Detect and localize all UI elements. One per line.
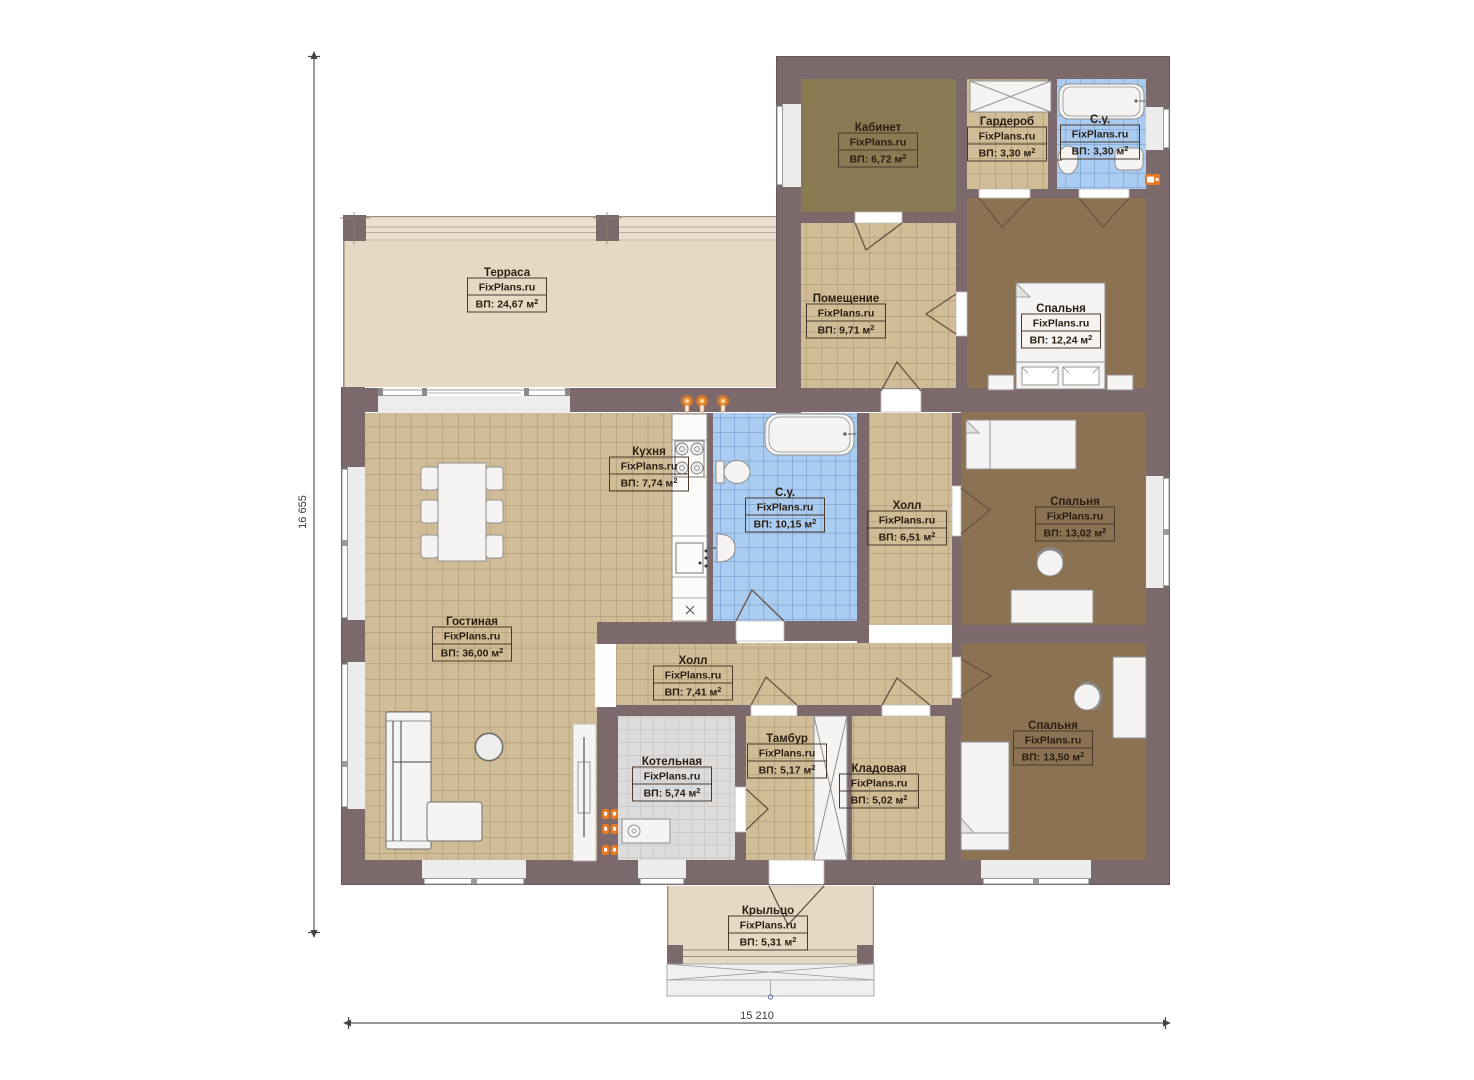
svg-text:ВП: 5,74 м2: ВП: 5,74 м2 <box>644 786 701 800</box>
svg-text:Гардероб: Гардероб <box>980 116 1034 128</box>
svg-text:FixPlans.ru: FixPlans.ru <box>444 631 501 643</box>
svg-text:FixPlans.ru: FixPlans.ru <box>665 670 722 682</box>
svg-text:ВП: 9,71 м2: ВП: 9,71 м2 <box>818 323 875 337</box>
svg-text:ВП: 7,74 м2: ВП: 7,74 м2 <box>621 476 678 490</box>
svg-text:ВП: 5,17 м2: ВП: 5,17 м2 <box>759 763 816 777</box>
svg-text:ВП: 5,31 м2: ВП: 5,31 м2 <box>740 935 797 949</box>
svg-text:Холл: Холл <box>893 500 922 512</box>
svg-text:FixPlans.ru: FixPlans.ru <box>759 748 816 760</box>
svg-text:FixPlans.ru: FixPlans.ru <box>850 137 907 149</box>
svg-text:Спальня: Спальня <box>1050 496 1100 508</box>
svg-text:Спальня: Спальня <box>1036 303 1086 315</box>
svg-text:ВП: 7,41 м2: ВП: 7,41 м2 <box>665 685 722 699</box>
svg-text:ВП: 6,72 м2: ВП: 6,72 м2 <box>850 152 907 166</box>
svg-text:ВП: 6,51 м2: ВП: 6,51 м2 <box>879 530 936 544</box>
svg-text:Терраса: Терраса <box>484 267 531 279</box>
svg-text:ВП: 13,02 м2: ВП: 13,02 м2 <box>1044 526 1107 540</box>
svg-text:FixPlans.ru: FixPlans.ru <box>644 771 701 783</box>
svg-text:Котельная: Котельная <box>642 756 702 768</box>
svg-text:ВП: 10,15 м2: ВП: 10,15 м2 <box>754 517 817 531</box>
svg-text:FixPlans.ru: FixPlans.ru <box>757 502 814 514</box>
svg-text:Гостиная: Гостиная <box>446 616 498 628</box>
svg-text:FixPlans.ru: FixPlans.ru <box>1025 735 1082 747</box>
svg-text:С.у.: С.у. <box>1090 114 1110 126</box>
svg-text:Тамбур: Тамбур <box>766 733 808 745</box>
svg-text:FixPlans.ru: FixPlans.ru <box>879 515 936 527</box>
svg-text:С.у.: С.у. <box>775 487 795 499</box>
svg-text:ВП: 3,30 м2: ВП: 3,30 м2 <box>979 146 1036 160</box>
svg-text:Спальня: Спальня <box>1028 720 1078 732</box>
svg-text:Холл: Холл <box>679 655 708 667</box>
svg-text:FixPlans.ru: FixPlans.ru <box>818 308 875 320</box>
svg-text:16 655: 16 655 <box>297 495 309 529</box>
svg-text:ВП: 3,30 м2: ВП: 3,30 м2 <box>1072 144 1129 158</box>
svg-text:Крыльцо: Крыльцо <box>742 905 794 917</box>
svg-text:ВП: 5,02 м2: ВП: 5,02 м2 <box>851 793 908 807</box>
svg-text:ВП: 12,24 м2: ВП: 12,24 м2 <box>1030 333 1093 347</box>
svg-text:ВП: 13,50 м2: ВП: 13,50 м2 <box>1022 750 1085 764</box>
svg-text:FixPlans.ru: FixPlans.ru <box>851 778 908 790</box>
svg-text:Помещение: Помещение <box>813 293 880 305</box>
svg-text:ВП: 24,67 м2: ВП: 24,67 м2 <box>476 297 539 311</box>
svg-text:FixPlans.ru: FixPlans.ru <box>1072 129 1129 141</box>
svg-text:ВП: 36,00 м2: ВП: 36,00 м2 <box>441 646 504 660</box>
svg-text:FixPlans.ru: FixPlans.ru <box>979 131 1036 143</box>
svg-text:FixPlans.ru: FixPlans.ru <box>740 920 797 932</box>
svg-text:FixPlans.ru: FixPlans.ru <box>1047 511 1104 523</box>
svg-text:Кухня: Кухня <box>632 446 666 458</box>
svg-text:FixPlans.ru: FixPlans.ru <box>621 461 678 473</box>
svg-text:15 210: 15 210 <box>740 1010 774 1022</box>
svg-text:Кабинет: Кабинет <box>855 122 902 134</box>
svg-text:FixPlans.ru: FixPlans.ru <box>479 282 536 294</box>
svg-text:FixPlans.ru: FixPlans.ru <box>1033 318 1090 330</box>
svg-text:Кладовая: Кладовая <box>851 763 906 775</box>
